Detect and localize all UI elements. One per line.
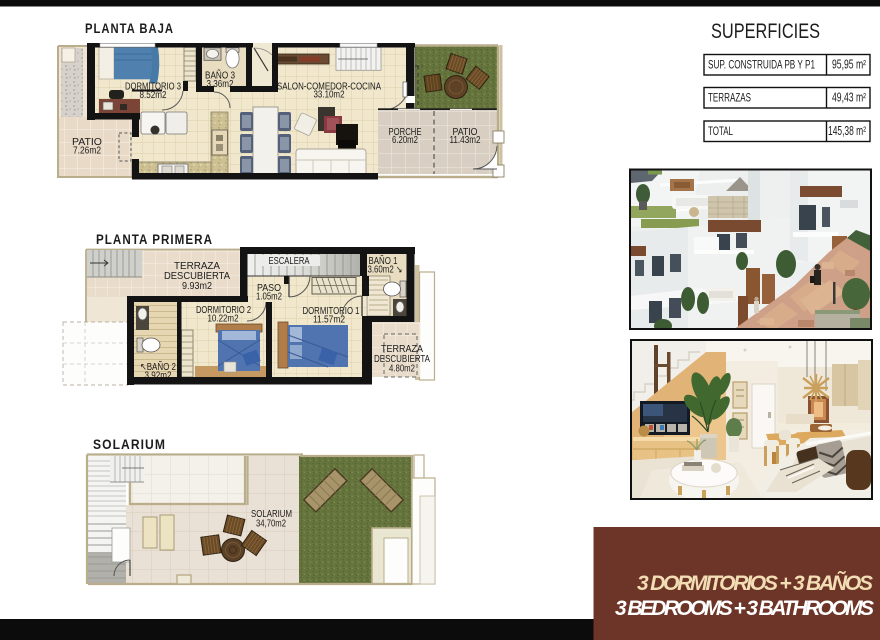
svg-text:95,95 m²: 95,95 m²: [832, 58, 866, 72]
svg-text:PLANTA BAJA: PLANTA BAJA: [85, 21, 174, 36]
svg-text:PLANTA PRIMERA: PLANTA PRIMERA: [96, 232, 213, 247]
svg-text:3 BEDROOMS + 3 BATHROOMS: 3 BEDROOMS + 3 BATHROOMS: [615, 597, 874, 620]
svg-text:3.60m2 ↘: 3.60m2 ↘: [368, 265, 403, 276]
svg-text:6.20m2: 6.20m2: [392, 135, 418, 146]
svg-text:TERRAZAS: TERRAZAS: [708, 93, 751, 105]
svg-text:11.57m2: 11.57m2: [313, 315, 345, 326]
svg-text:SOLARIUM: SOLARIUM: [93, 437, 166, 452]
svg-text:SUP. CONSTRUIDA PB Y P1: SUP. CONSTRUIDA PB Y P1: [708, 60, 815, 72]
svg-text:SUPERFICIES: SUPERFICIES: [711, 20, 820, 43]
svg-text:49,43 m²: 49,43 m²: [832, 91, 866, 105]
svg-text:10.22m2: 10.22m2: [208, 314, 239, 325]
svg-text:1.05m2: 1.05m2: [256, 292, 282, 303]
svg-text:3 DORMITORIOS + 3 BAÑOS: 3 DORMITORIOS + 3 BAÑOS: [637, 572, 873, 595]
svg-text:33.10m2: 33.10m2: [314, 90, 345, 101]
svg-text:TOTAL: TOTAL: [708, 126, 733, 138]
svg-text:34,70m2: 34,70m2: [256, 519, 286, 530]
svg-text:9.93m2: 9.93m2: [182, 281, 212, 292]
svg-text:8.52m2: 8.52m2: [140, 90, 167, 101]
svg-text:7.26m2: 7.26m2: [73, 146, 101, 157]
svg-text:ESCALERA: ESCALERA: [269, 256, 310, 267]
svg-text:11.43m2: 11.43m2: [450, 135, 481, 146]
svg-text:4.80m2: 4.80m2: [389, 364, 415, 375]
svg-text:145,38 m²: 145,38 m²: [828, 124, 866, 138]
